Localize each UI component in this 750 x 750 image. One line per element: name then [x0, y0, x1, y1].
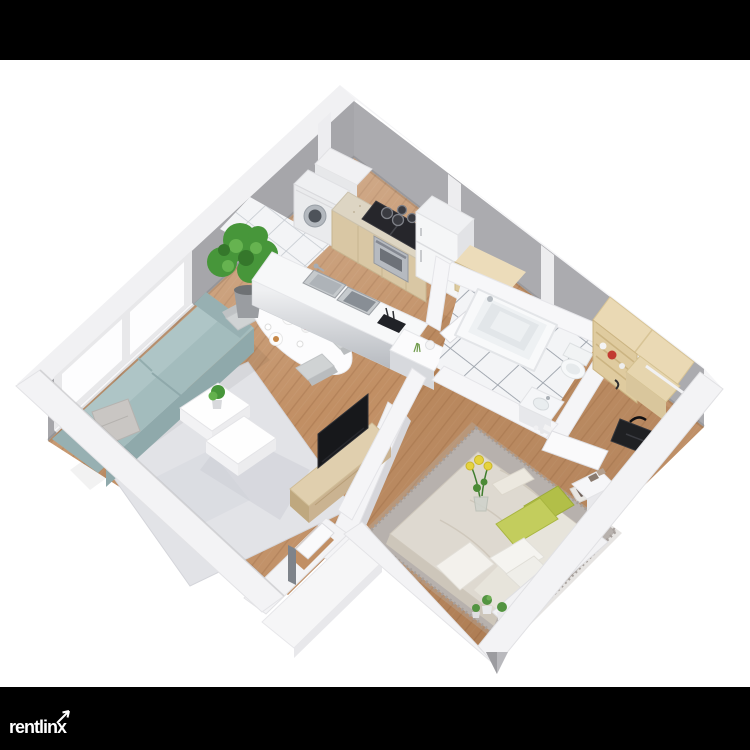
red-item — [608, 351, 617, 360]
flower-leaves — [473, 484, 481, 492]
flower-leaves — [481, 479, 488, 486]
bowl — [426, 341, 435, 350]
tap — [546, 396, 550, 400]
shelf-item — [619, 363, 625, 369]
screenshot-root: rentlinx — [0, 0, 750, 750]
rentlinx-logo-text: rentlinx — [9, 717, 67, 737]
bottom-letterbox-bar — [0, 687, 750, 750]
tub-faucet — [487, 296, 493, 302]
washer-door-glass — [309, 210, 322, 223]
vase — [474, 497, 488, 511]
shelf-item — [600, 343, 607, 350]
floorplan-3d-render: rentlinx — [0, 0, 750, 750]
top-letterbox-bar — [0, 0, 750, 60]
table-plant-pot — [212, 400, 222, 409]
door-edge — [288, 545, 296, 585]
table-plant — [209, 392, 218, 401]
